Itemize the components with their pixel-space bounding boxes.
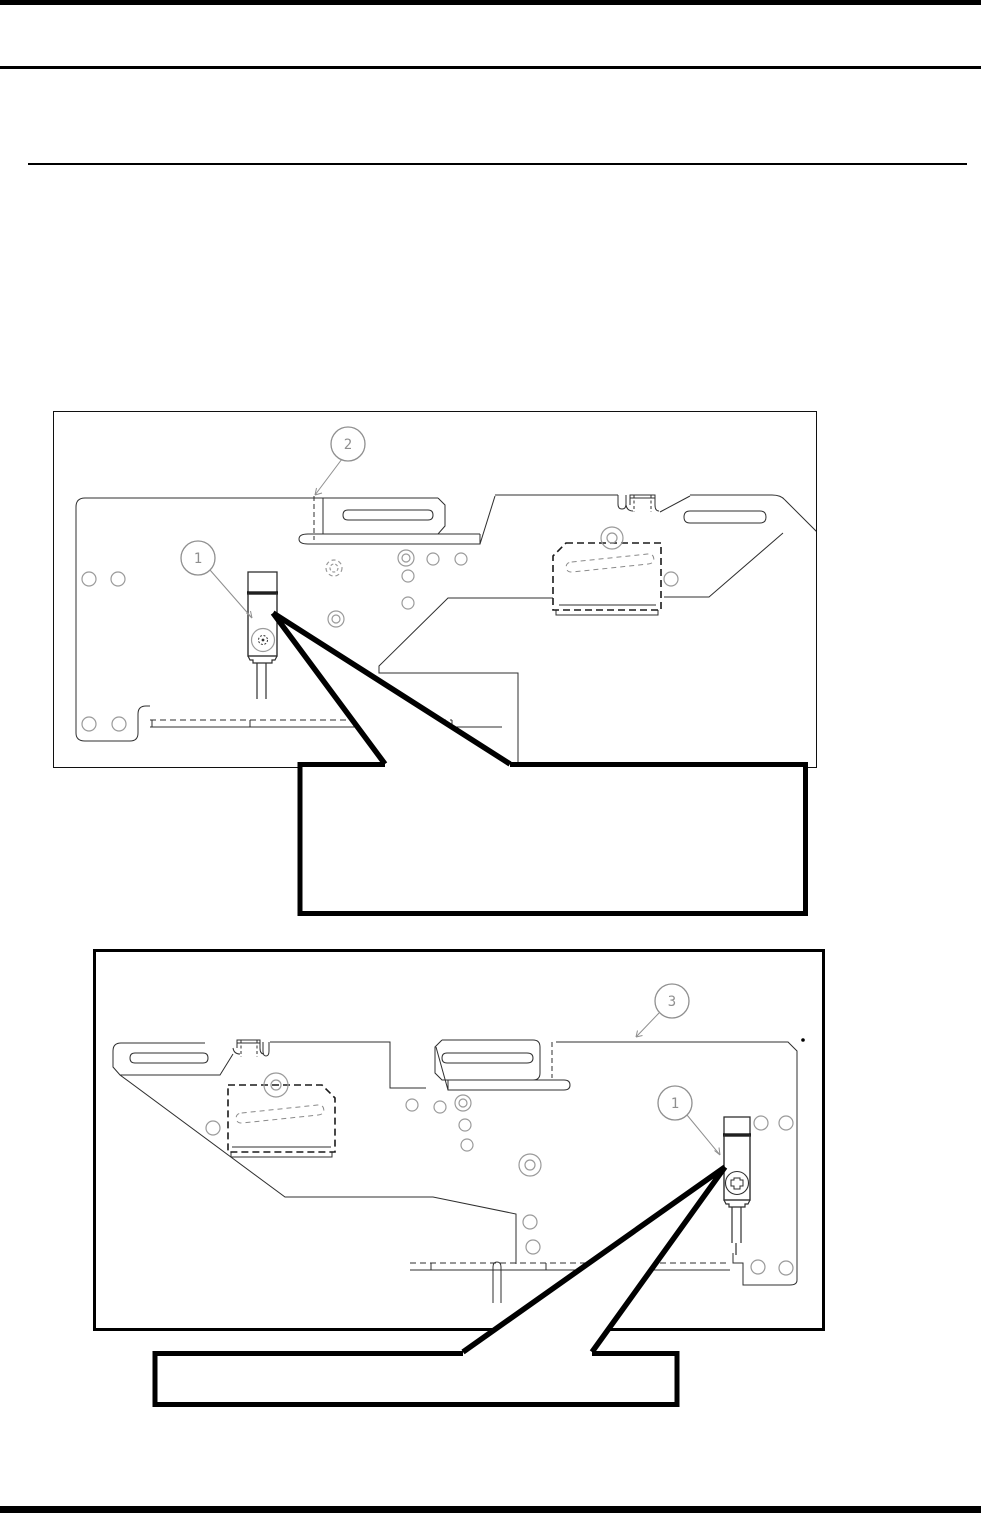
header-rule — [0, 66, 981, 69]
sensor-component — [723, 1117, 751, 1255]
figure-2-panel: 3 1 — [93, 949, 825, 1331]
figure-2-drawing: 3 1 — [96, 952, 822, 1328]
subheader-rule — [28, 163, 967, 165]
callout-label: 1 — [671, 1096, 679, 1112]
top-bar — [0, 0, 981, 5]
callout-balloon-1: 1 — [658, 1086, 720, 1155]
callout-label: 3 — [668, 994, 676, 1010]
sensor-pin — [732, 1207, 741, 1255]
corner-reference-dot — [801, 1038, 805, 1042]
leader-line — [636, 1013, 659, 1037]
manual-page: 2 1 — [0, 0, 981, 1516]
leader-line — [210, 570, 252, 618]
figure-1-panel: 2 1 — [53, 411, 817, 768]
sensor-component — [247, 572, 278, 699]
callout-balloon-1: 1 — [181, 541, 252, 618]
hidden-bracket-outline — [553, 543, 661, 610]
callout-label: 1 — [194, 551, 202, 567]
callout-balloon-3: 3 — [636, 984, 689, 1037]
mounting-holes — [206, 1073, 793, 1275]
sensor-pin — [257, 663, 266, 699]
callout-balloon-2: 2 — [315, 427, 365, 495]
phillips-screw-icon — [731, 1178, 743, 1189]
callout-box-1 — [300, 765, 806, 914]
mounting-holes — [82, 527, 678, 731]
figure-1-drawing: 2 1 — [54, 412, 816, 767]
leader-line — [687, 1115, 720, 1155]
callout-box-2 — [155, 1354, 677, 1405]
leader-line — [315, 459, 342, 495]
callout-label: 2 — [344, 437, 352, 453]
bottom-bar — [0, 1506, 981, 1513]
